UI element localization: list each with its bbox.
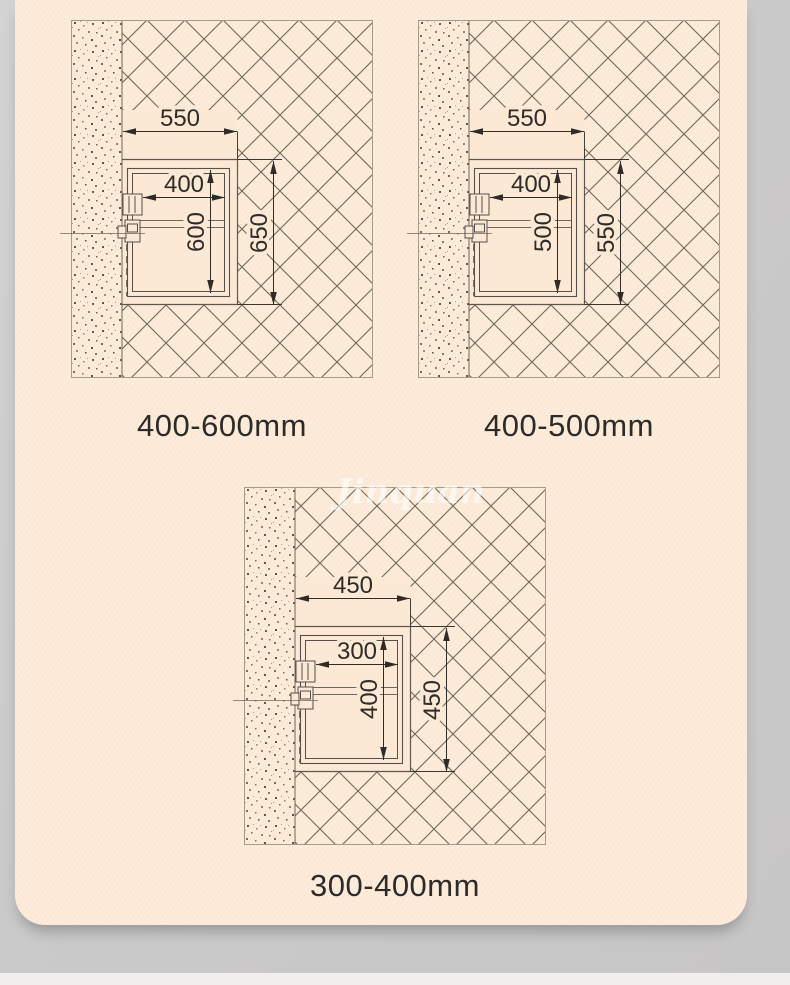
diagram-300-400: 450 300 400 450 bbox=[244, 487, 546, 845]
diagram-400-600: 550 400 600 650 bbox=[71, 20, 373, 378]
wall-column bbox=[72, 21, 122, 377]
dim-inner-width-value: 300 bbox=[337, 638, 377, 665]
installation-drawing: 450 300 400 450 bbox=[244, 487, 546, 845]
size-range-label-2: 400-500mm bbox=[434, 408, 704, 444]
dim-inner-width-value: 400 bbox=[511, 171, 551, 198]
dim-outer-height-value: 450 bbox=[419, 680, 446, 720]
page-footer-strip bbox=[0, 973, 790, 985]
dim-inner-height-value: 500 bbox=[530, 212, 557, 252]
diagram-400-500: 550 400 500 550 bbox=[418, 20, 720, 378]
installation-drawing: 550 400 500 550 bbox=[418, 20, 720, 378]
dim-outer-height-value: 550 bbox=[593, 213, 620, 253]
size-range-label-1: 400-600mm bbox=[87, 408, 357, 444]
size-range-label-3: 300-400mm bbox=[260, 868, 530, 904]
dim-inner-width-value: 400 bbox=[164, 171, 204, 198]
dim-outer-height-value: 650 bbox=[246, 213, 273, 253]
wall-column bbox=[245, 488, 295, 844]
dim-top-width-value: 550 bbox=[507, 105, 547, 132]
installation-drawing: 550 400 600 650 bbox=[71, 20, 373, 378]
dim-inner-height-value: 400 bbox=[356, 679, 383, 719]
dim-top-width-value: 450 bbox=[333, 572, 373, 599]
wall-column bbox=[419, 21, 469, 377]
spec-card: 550 400 600 650 bbox=[15, 0, 747, 925]
dim-inner-height-value: 600 bbox=[183, 212, 210, 252]
dim-top-width-value: 550 bbox=[160, 105, 200, 132]
